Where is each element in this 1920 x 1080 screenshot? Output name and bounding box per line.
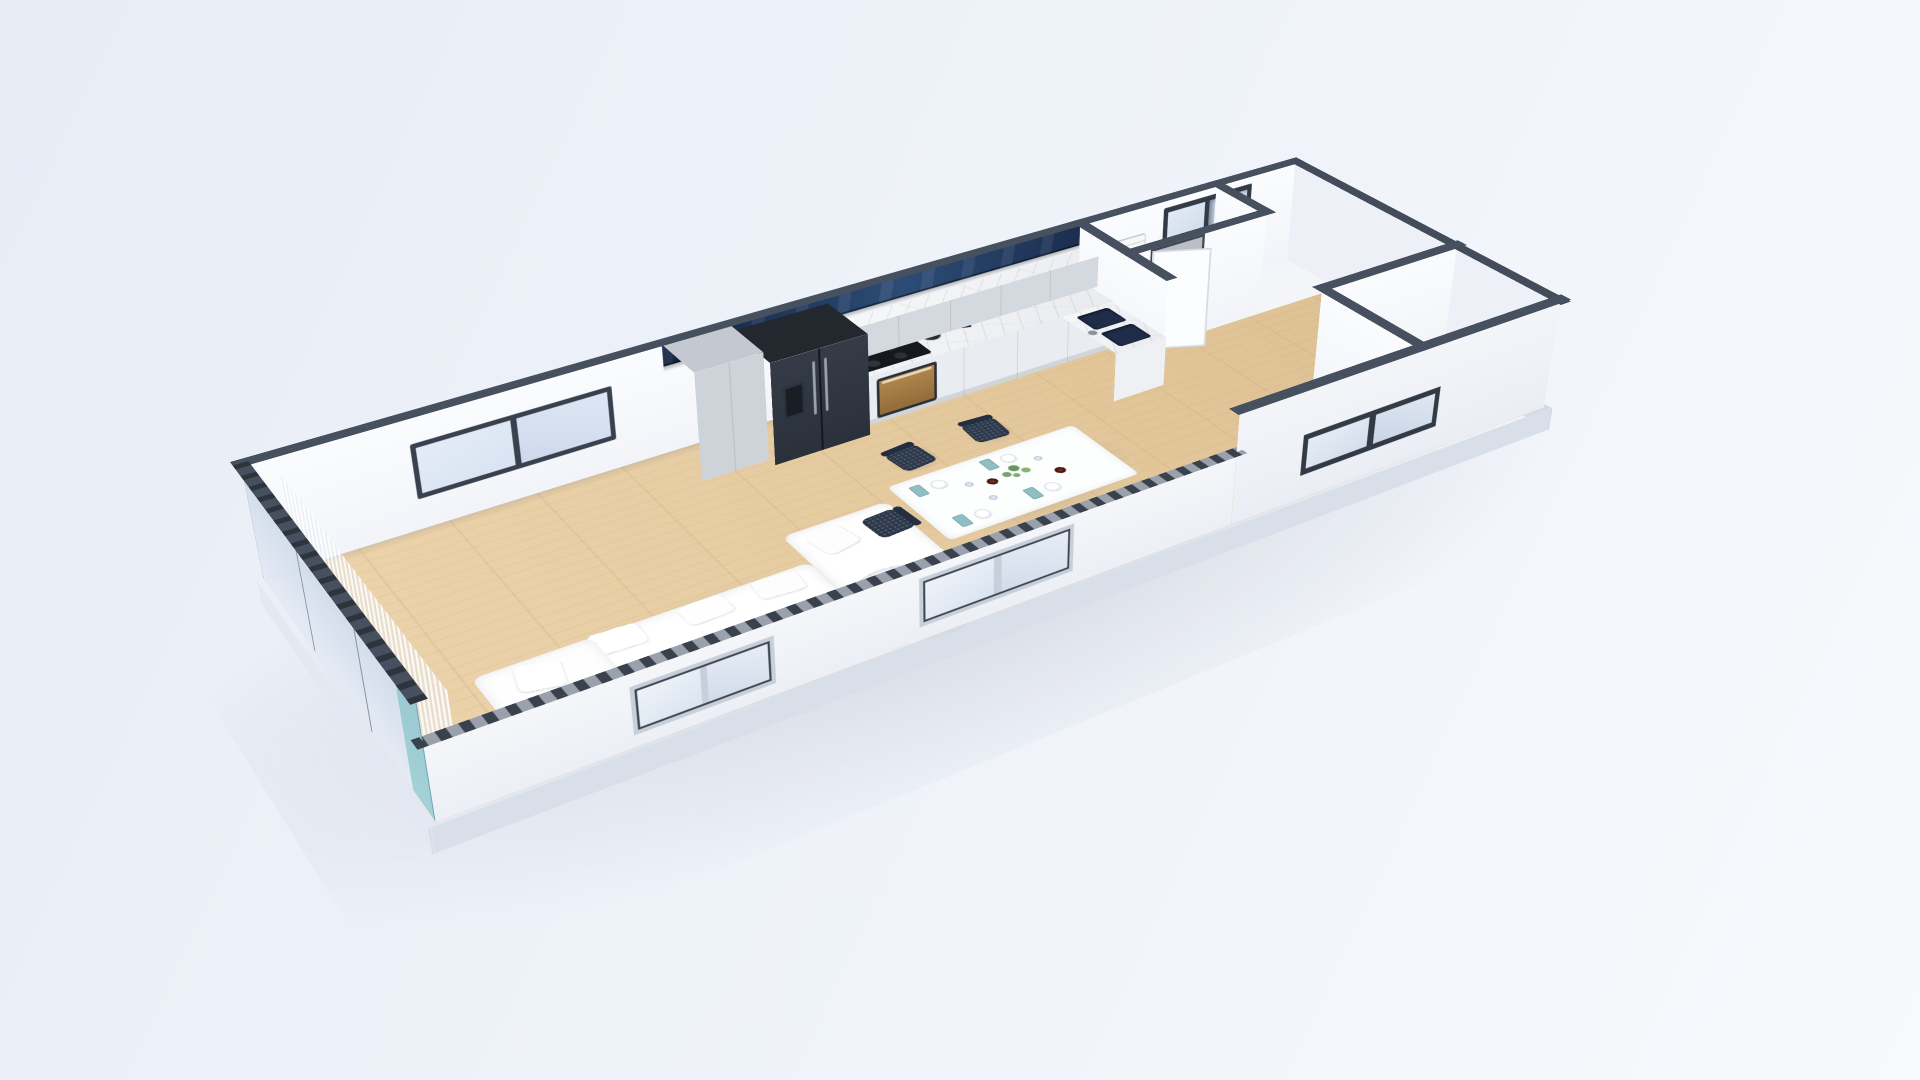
- napkin-cutlery: [1022, 487, 1045, 500]
- fridge-door-seam: [818, 348, 824, 450]
- napkin-cutlery: [951, 514, 974, 528]
- cabinet-seam: [1000, 285, 1001, 316]
- window-pane: [637, 668, 703, 727]
- cabinet-seam: [1050, 270, 1052, 301]
- sink-faucet: [1086, 330, 1098, 336]
- apartment-model: [223, 247, 1602, 873]
- sofa-pillow: [804, 524, 863, 556]
- window-pane: [925, 558, 994, 620]
- glass: [963, 481, 975, 487]
- window-pane: [516, 392, 611, 463]
- plate: [927, 478, 950, 490]
- drawer-seam: [964, 347, 965, 395]
- plate: [971, 507, 995, 520]
- cabinet-seam: [729, 362, 737, 471]
- render-stage: [0, 0, 1920, 1080]
- napkin-cutlery: [908, 484, 930, 497]
- window-pane: [416, 420, 516, 493]
- pantry-cabinet-front: [694, 352, 769, 481]
- window-pane: [1373, 393, 1436, 444]
- candle-cup: [1052, 466, 1068, 474]
- cabinet-seam: [898, 315, 899, 347]
- cabinet-seam: [950, 300, 951, 331]
- glass: [1032, 455, 1044, 461]
- plate: [1041, 480, 1065, 492]
- window-pane: [1001, 531, 1068, 592]
- facade-window-dark: [1300, 386, 1441, 476]
- window-pane: [1306, 417, 1370, 469]
- window-pane: [706, 644, 769, 702]
- drawer-seam: [1017, 331, 1019, 379]
- fridge-handle: [824, 357, 829, 411]
- fridge-dispenser: [783, 381, 806, 421]
- fridge-handle: [812, 361, 817, 415]
- glass: [987, 494, 999, 500]
